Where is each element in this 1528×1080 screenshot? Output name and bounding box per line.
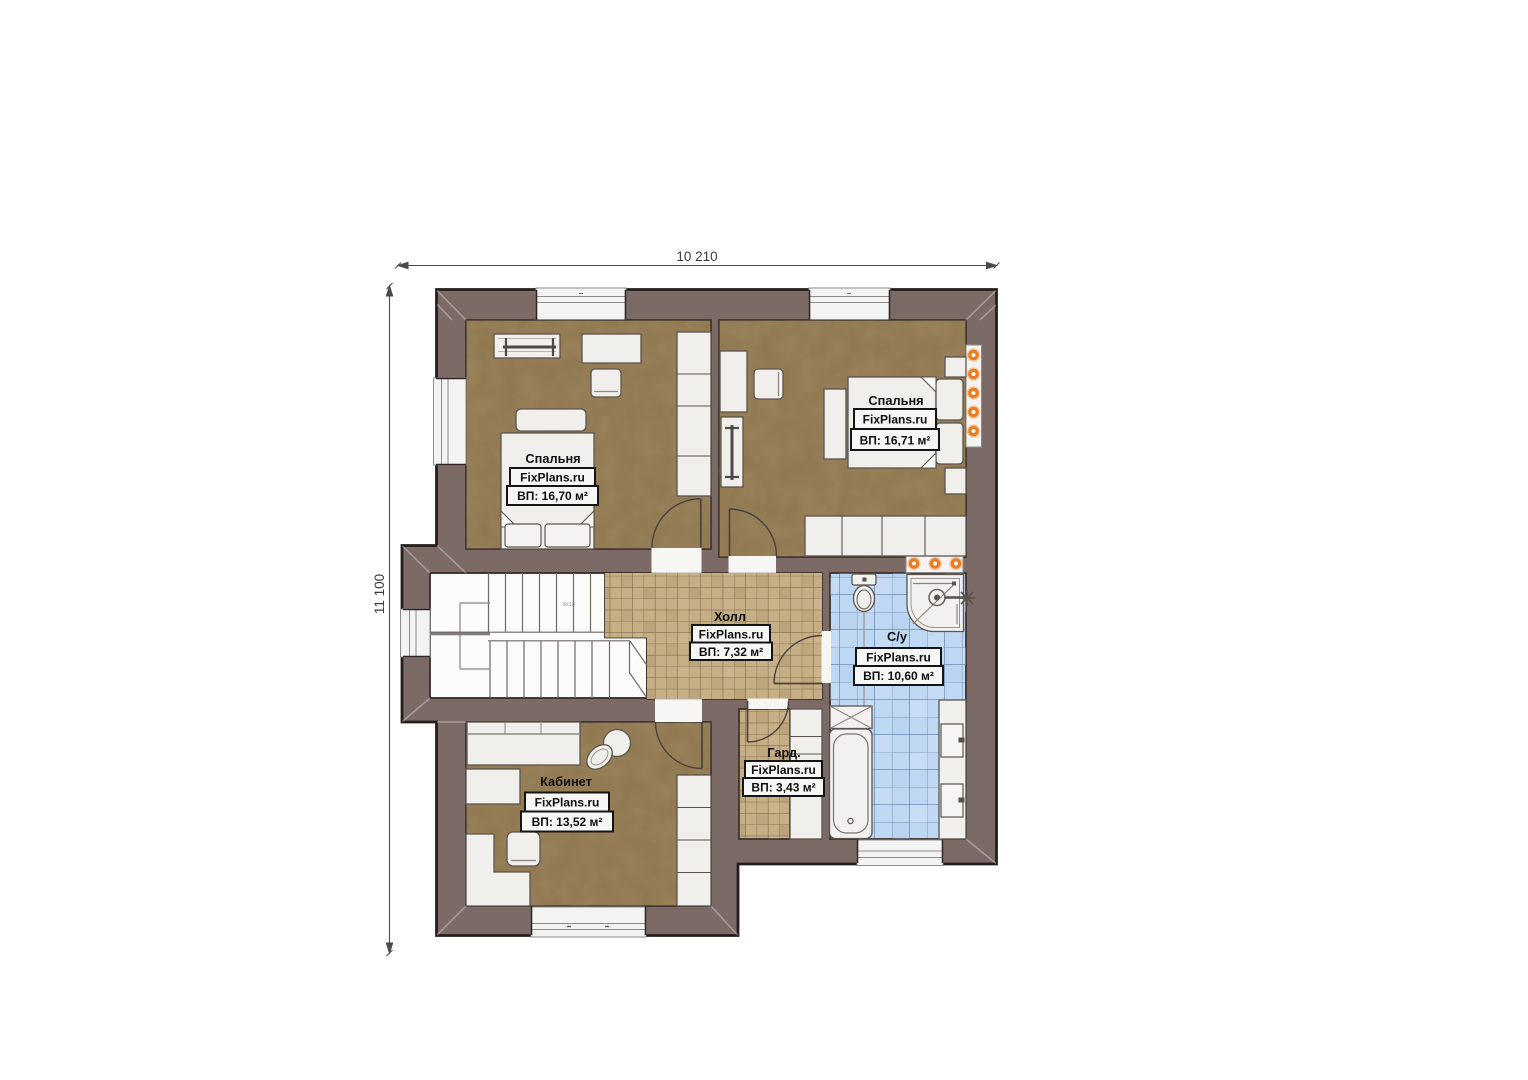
svg-text:FixPlans.ru: FixPlans.ru <box>699 628 764 642</box>
svg-text:FixPlans.ru: FixPlans.ru <box>520 471 585 485</box>
svg-text:FixPlans.ru: FixPlans.ru <box>751 763 816 777</box>
svg-text:Спальня: Спальня <box>868 393 923 408</box>
svg-text:Кабинет: Кабинет <box>540 774 592 789</box>
svg-text:FixPlans.ru: FixPlans.ru <box>535 796 600 810</box>
svg-text:С/у: С/у <box>887 629 908 644</box>
svg-text:ВП: 16,71 м²: ВП: 16,71 м² <box>860 434 931 448</box>
svg-text:ВП: 3,43 м²: ВП: 3,43 м² <box>751 781 815 795</box>
svg-text:ВП: 10,60 м²: ВП: 10,60 м² <box>863 669 934 683</box>
svg-text:Спальня: Спальня <box>525 451 580 466</box>
svg-text:ВП: 13,52 м²: ВП: 13,52 м² <box>532 815 603 829</box>
svg-text:FixPlans.ru: FixPlans.ru <box>866 651 931 665</box>
svg-text:ВП: 7,32 м²: ВП: 7,32 м² <box>699 645 763 659</box>
svg-text:Гард.: Гард. <box>767 745 800 760</box>
svg-text:11 100: 11 100 <box>372 574 387 614</box>
svg-text:10 210: 10 210 <box>676 249 717 264</box>
svg-text:Холл: Холл <box>714 609 746 624</box>
svg-text:ВП: 16,70 м²: ВП: 16,70 м² <box>517 489 588 503</box>
svg-text:8x18: 8x18 <box>563 602 575 608</box>
svg-text:FixPlans.ru: FixPlans.ru <box>863 413 928 427</box>
